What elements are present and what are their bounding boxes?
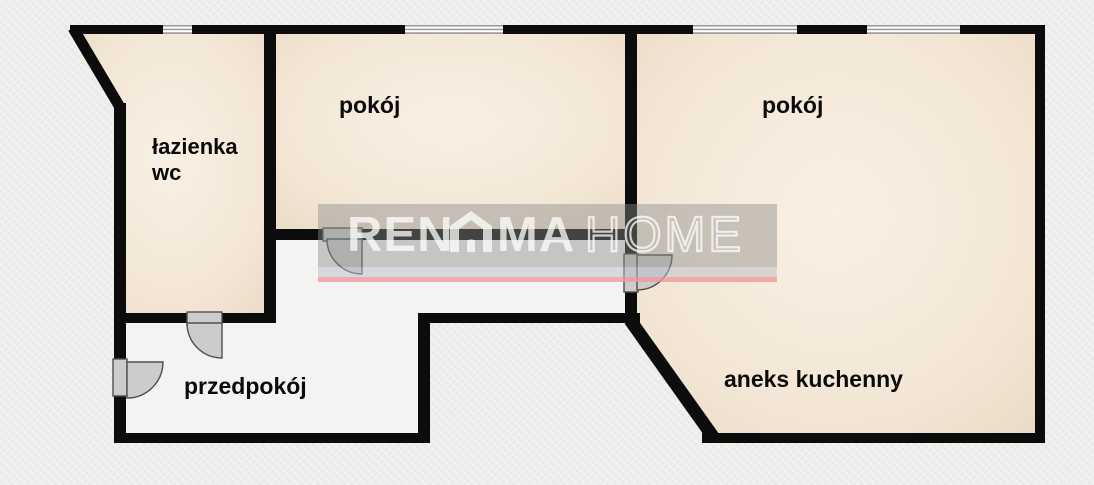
wall-segment xyxy=(192,25,405,34)
watermark-text-ma: MA xyxy=(497,208,575,262)
wall-segment xyxy=(418,313,430,443)
room-label-room1: pokój xyxy=(339,92,400,118)
window xyxy=(693,25,797,34)
room-label-bathroom-line2: wc xyxy=(151,160,181,185)
room-label-bathroom-line1: łazienka xyxy=(152,134,238,159)
window xyxy=(867,25,960,34)
room-label-hallway: przedpokój xyxy=(184,373,307,399)
watermark-text-ren: REN xyxy=(347,208,453,262)
wall-segment xyxy=(114,433,430,443)
watermark-text-home: HOME xyxy=(585,208,744,262)
watermark-underline xyxy=(318,277,777,282)
wall-segment xyxy=(222,313,276,323)
wall-segment xyxy=(797,25,867,34)
wall-segment xyxy=(70,25,163,34)
wall-segment xyxy=(960,25,1045,34)
wall-segment xyxy=(1035,25,1045,443)
wall-segment xyxy=(114,313,187,323)
floorplan-canvas: łazienka wc pokój pokój przedpokój aneks… xyxy=(0,0,1094,485)
wall-segment xyxy=(702,433,1045,443)
window xyxy=(405,25,503,34)
watermark: REN MA HOME xyxy=(318,204,777,282)
room-label-room2: pokój xyxy=(762,92,823,118)
floorplan-svg: łazienka wc pokój pokój przedpokój aneks… xyxy=(0,0,1094,485)
watermark-accent-strip xyxy=(318,267,777,277)
wall-segment xyxy=(264,229,323,240)
wall-segment xyxy=(503,25,693,34)
room-label-kitchen: aneks kuchenny xyxy=(724,366,903,392)
wall-segment xyxy=(418,313,640,323)
wall-segment xyxy=(264,25,276,323)
window xyxy=(163,25,192,34)
door-entrance-leaf xyxy=(113,359,127,396)
